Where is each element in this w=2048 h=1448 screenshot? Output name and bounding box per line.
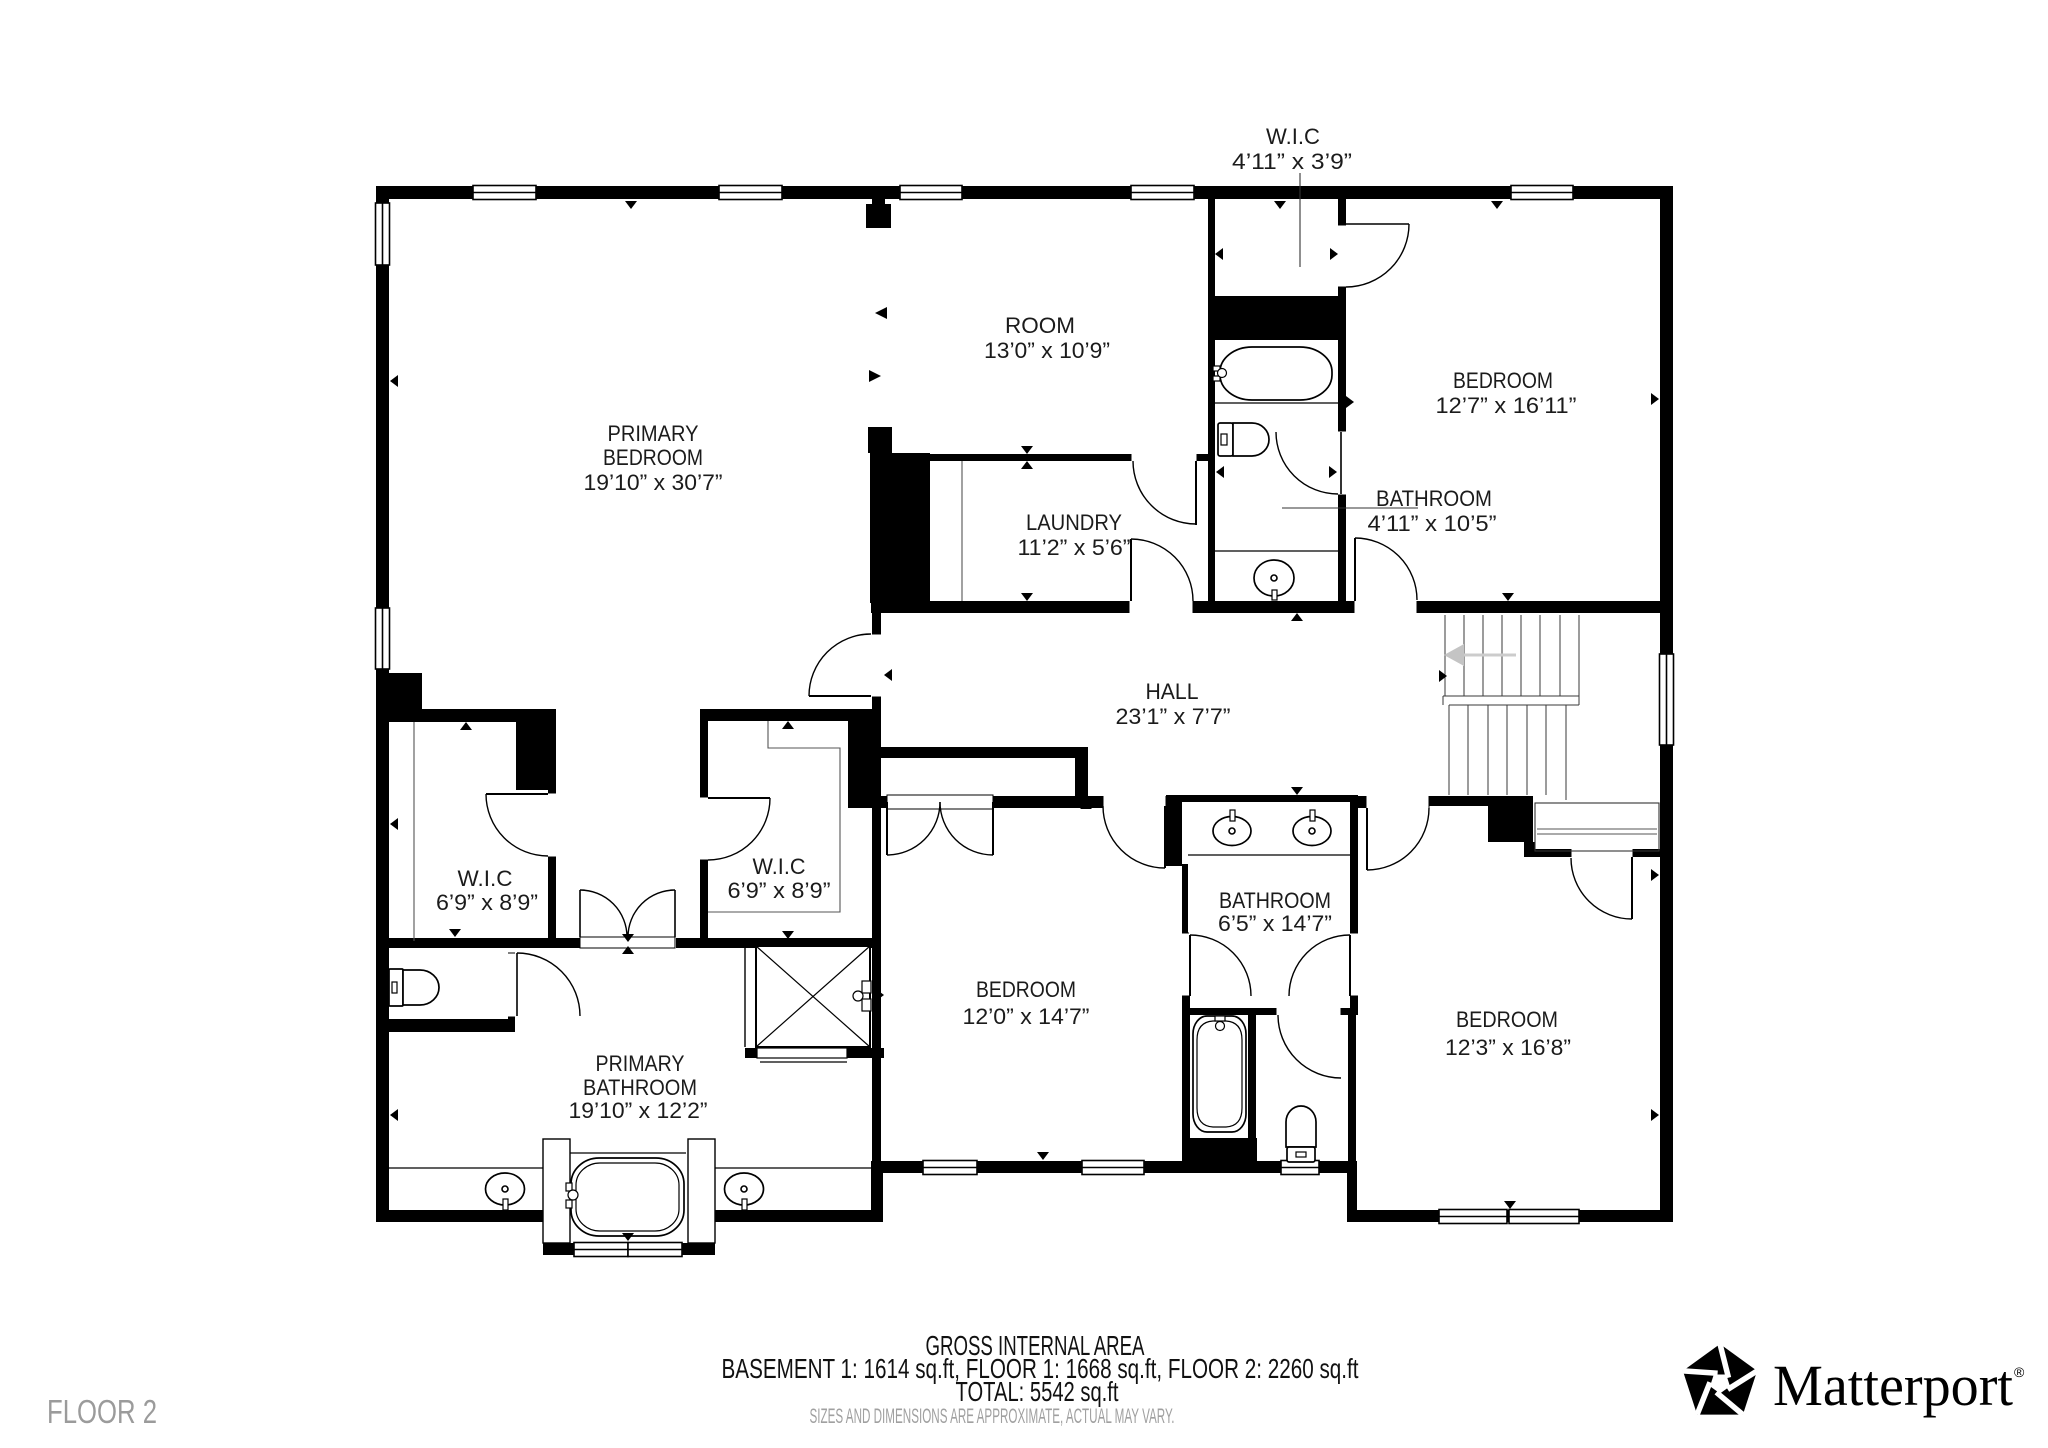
svg-text:ROOM: ROOM — [1005, 313, 1075, 338]
svg-text:SIZES AND DIMENSIONS ARE APPRO: SIZES AND DIMENSIONS ARE APPROXIMATE, AC… — [810, 1405, 1175, 1428]
svg-text:6’5” x 14’7”: 6’5” x 14’7” — [1218, 911, 1332, 936]
svg-text:4’11” x 3’9”: 4’11” x 3’9” — [1232, 149, 1352, 174]
svg-text:W.I.C: W.I.C — [1266, 124, 1320, 149]
svg-text:19’10” x 12’2”: 19’10” x 12’2” — [569, 1098, 708, 1123]
svg-text:23’1” x 7’7”: 23’1” x 7’7” — [1116, 704, 1231, 729]
svg-text:BEDROOM: BEDROOM — [976, 977, 1076, 1002]
svg-text:FLOOR 2: FLOOR 2 — [47, 1393, 157, 1430]
svg-text:W.I.C: W.I.C — [753, 854, 806, 879]
svg-text:W.I.C: W.I.C — [458, 866, 513, 891]
svg-text:®: ® — [2014, 1364, 2025, 1380]
svg-text:LAUNDRY: LAUNDRY — [1026, 510, 1122, 535]
svg-text:6’9” x 8’9”: 6’9” x 8’9” — [728, 878, 831, 903]
svg-text:PRIMARY: PRIMARY — [596, 1051, 685, 1076]
svg-text:PRIMARY: PRIMARY — [608, 421, 699, 446]
svg-text:Matterport: Matterport — [1773, 1353, 2013, 1418]
svg-text:11’2” x 5’6”: 11’2” x 5’6” — [1018, 535, 1131, 560]
svg-text:12’0” x 14’7”: 12’0” x 14’7” — [963, 1004, 1090, 1029]
svg-text:TOTAL: 5542 sq.ft: TOTAL: 5542 sq.ft — [956, 1376, 1119, 1407]
svg-text:BEDROOM: BEDROOM — [603, 445, 703, 470]
svg-text:BEDROOM: BEDROOM — [1456, 1007, 1558, 1032]
svg-text:BATHROOM: BATHROOM — [1219, 888, 1331, 913]
svg-text:BEDROOM: BEDROOM — [1453, 368, 1553, 393]
svg-text:12’7” x 16’11”: 12’7” x 16’11” — [1436, 393, 1577, 418]
svg-text:12’3” x 16’8”: 12’3” x 16’8” — [1445, 1035, 1571, 1060]
svg-text:6’9” x 8’9”: 6’9” x 8’9” — [436, 890, 538, 915]
svg-text:4’11” x 10’5”: 4’11” x 10’5” — [1368, 511, 1497, 536]
svg-text:13’0” x 10’9”: 13’0” x 10’9” — [984, 338, 1110, 363]
svg-text:HALL: HALL — [1146, 679, 1199, 704]
svg-text:19’10” x 30’7”: 19’10” x 30’7” — [584, 470, 723, 495]
svg-text:BATHROOM: BATHROOM — [1376, 486, 1492, 511]
svg-text:BATHROOM: BATHROOM — [583, 1075, 697, 1100]
